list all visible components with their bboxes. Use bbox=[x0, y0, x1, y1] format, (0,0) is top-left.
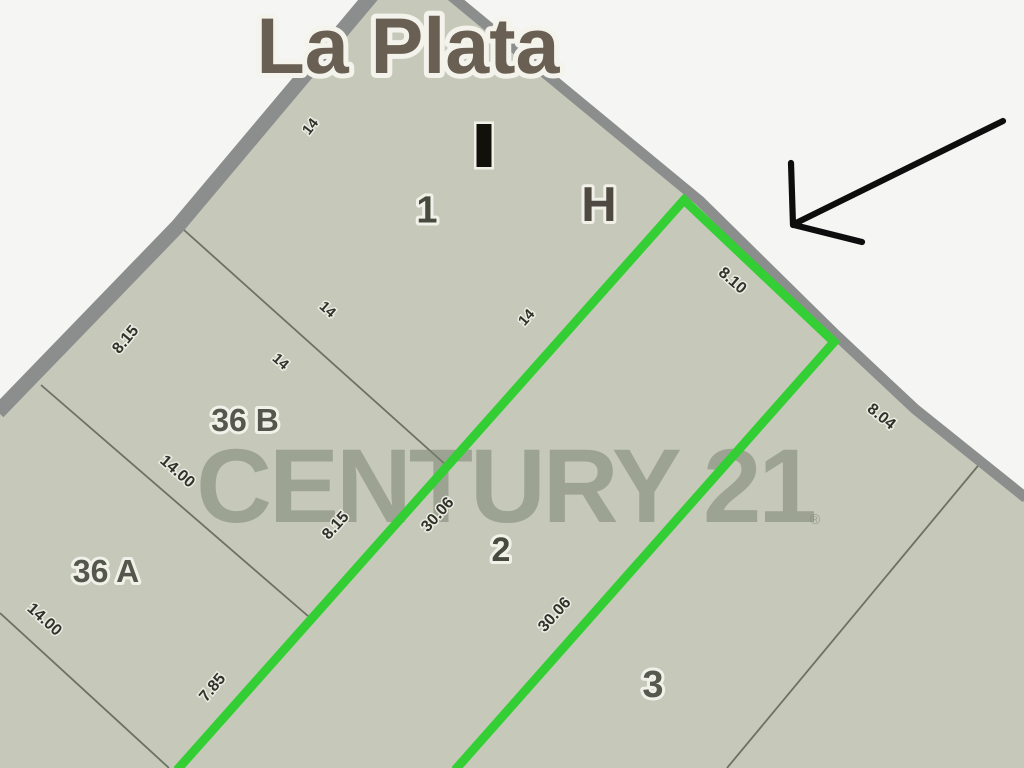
svg-text:®: ® bbox=[810, 511, 821, 527]
svg-text:36 A: 36 A bbox=[73, 553, 139, 589]
svg-text:2: 2 bbox=[492, 531, 511, 569]
svg-text:36 B: 36 B bbox=[211, 402, 279, 438]
svg-text:3: 3 bbox=[642, 664, 663, 706]
svg-text:La Plata: La Plata bbox=[257, 1, 561, 90]
svg-text:CENTURY 21: CENTURY 21 bbox=[196, 428, 814, 545]
svg-text:1: 1 bbox=[416, 190, 437, 232]
svg-text:H: H bbox=[581, 178, 616, 232]
